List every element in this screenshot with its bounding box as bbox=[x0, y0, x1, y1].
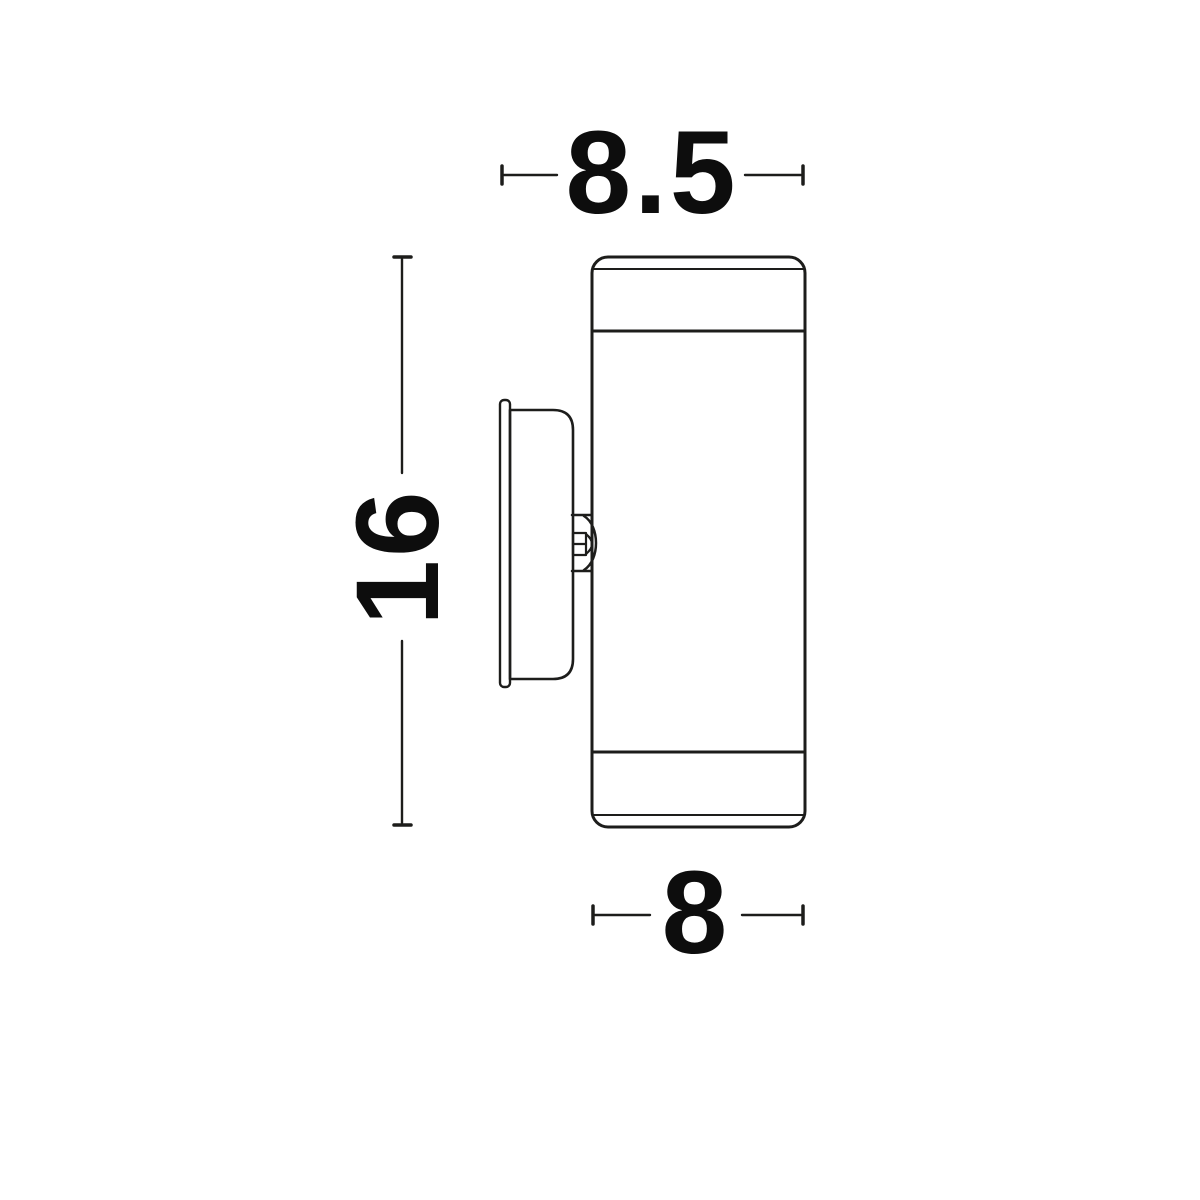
lamp-body bbox=[592, 257, 805, 827]
dim-bottom-diameter-label: 8 bbox=[662, 847, 731, 979]
dimension-height: 16 bbox=[332, 257, 464, 825]
mount-bracket bbox=[510, 410, 573, 679]
wall-plate bbox=[500, 400, 510, 687]
dimension-top-depth: 8.5 bbox=[502, 107, 803, 239]
dim-height-label: 16 bbox=[332, 488, 464, 625]
technical-drawing: 8.5 16 8 bbox=[0, 0, 1200, 1200]
mount-screw bbox=[572, 515, 596, 571]
diagram-canvas: 8.5 16 8 bbox=[0, 0, 1200, 1200]
dimension-bottom-diameter: 8 bbox=[593, 847, 803, 979]
dim-top-depth-label: 8.5 bbox=[565, 107, 738, 239]
lamp-body-outline bbox=[592, 257, 805, 827]
wall-mount bbox=[500, 400, 596, 687]
